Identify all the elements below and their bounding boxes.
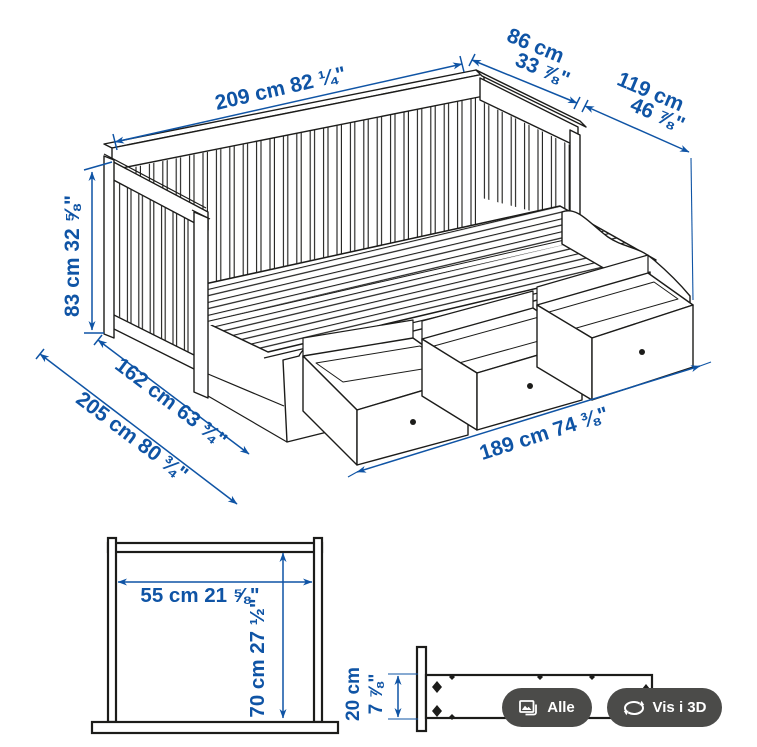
dim-label-drawer-height: 70 cm 27 ½" xyxy=(246,598,269,717)
daybed-dimension-illustration: 209 cm 82 ¼" 86 cm 33 ⅞" 119 cm 46 ⅞" 83… xyxy=(0,0,757,747)
gallery-icon xyxy=(519,700,539,716)
drawer-side-diagram: 20 cm 7 ⅞" xyxy=(343,647,652,731)
view-in-3d-label: Vis i 3D xyxy=(653,699,707,716)
drawer-knob xyxy=(527,383,533,389)
show-all-photos-button[interactable]: Alle xyxy=(502,688,592,727)
rotate-3d-icon xyxy=(623,700,645,716)
right-end-panel xyxy=(476,70,586,222)
dim-label-side-height-cm: 20 cm xyxy=(343,667,364,721)
dim-label-height: 83 cm 32 ⅝" xyxy=(61,195,84,317)
drawer-knob xyxy=(639,349,645,355)
view-in-3d-button[interactable]: Vis i 3D xyxy=(607,688,722,727)
dim-label-side-height-in: 7 ⅞" xyxy=(366,674,387,715)
product-dimensions-view: 209 cm 82 ¼" 86 cm 33 ⅞" 119 cm 46 ⅞" 83… xyxy=(0,0,757,747)
dim-label-drawer-width: 55 cm 21 ⅝" xyxy=(140,584,259,607)
show-all-photos-label: Alle xyxy=(547,699,575,716)
drawer-front-diagram: 55 cm 21 ⅝" 70 cm 27 ½" xyxy=(92,538,338,733)
drawer-knob xyxy=(410,419,416,425)
